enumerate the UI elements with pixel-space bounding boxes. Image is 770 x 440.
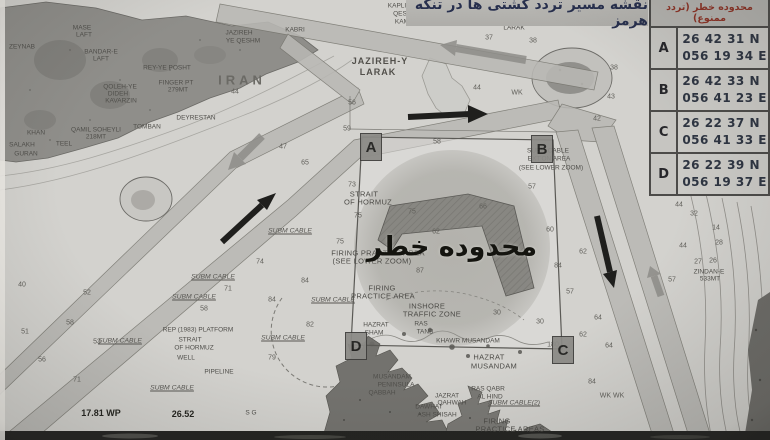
photo-bottom-edge xyxy=(0,431,770,440)
point-letter: C xyxy=(650,111,677,153)
point-letter: B xyxy=(650,69,677,111)
latitude-value: 26 42 31 N xyxy=(682,31,767,48)
corner-marker-a: A xyxy=(360,133,382,161)
danger-table-header: محدوده خطر (تردد ممنوع) xyxy=(650,0,769,27)
danger-zone-label: محدوده خطر xyxy=(367,232,537,263)
longitude-value: 056 19 34 E xyxy=(682,48,767,65)
danger-table-row: B26 42 33 N056 41 23 E xyxy=(650,69,769,111)
corner-marker-d: D xyxy=(345,332,367,360)
danger-zone-table: محدوده خطر (تردد ممنوع) A26 42 31 N056 1… xyxy=(649,0,770,196)
longitude-value: 056 41 33 E xyxy=(682,132,767,149)
chart-title-text: نقشه مسیر تردد کشتی ها در تنگه هرمز xyxy=(406,0,648,29)
latitude-value: 26 22 39 N xyxy=(682,157,767,174)
longitude-value: 056 19 37 E xyxy=(682,174,767,191)
point-letter: D xyxy=(650,153,677,195)
hengam-island xyxy=(120,177,172,221)
corner-marker-b: B xyxy=(531,135,553,163)
chart-title: نقشه مسیر تردد کشتی ها در تنگه هرمز xyxy=(406,0,648,26)
nautical-chart-photo: KAPLIQESHMKAMRLIMASELAFTBANDAR-ELAFTZEYN… xyxy=(0,0,770,440)
point-coordinates: 26 22 39 N056 19 37 E xyxy=(677,153,769,195)
latitude-value: 26 22 37 N xyxy=(682,115,767,132)
corner-marker-c: C xyxy=(552,336,574,364)
point-coordinates: 26 42 33 N056 41 23 E xyxy=(677,69,769,111)
latitude-value: 26 42 33 N xyxy=(682,73,767,90)
danger-table-row: C26 22 37 N056 41 33 E xyxy=(650,111,769,153)
danger-table-row: D26 22 39 N056 19 37 E xyxy=(650,153,769,195)
point-letter: A xyxy=(650,27,677,69)
photo-left-edge xyxy=(0,0,5,440)
point-coordinates: 26 22 37 N056 41 33 E xyxy=(677,111,769,153)
longitude-value: 056 41 23 E xyxy=(682,90,767,107)
point-coordinates: 26 42 31 N056 19 34 E xyxy=(677,27,769,69)
danger-table-row: A26 42 31 N056 19 34 E xyxy=(650,27,769,69)
